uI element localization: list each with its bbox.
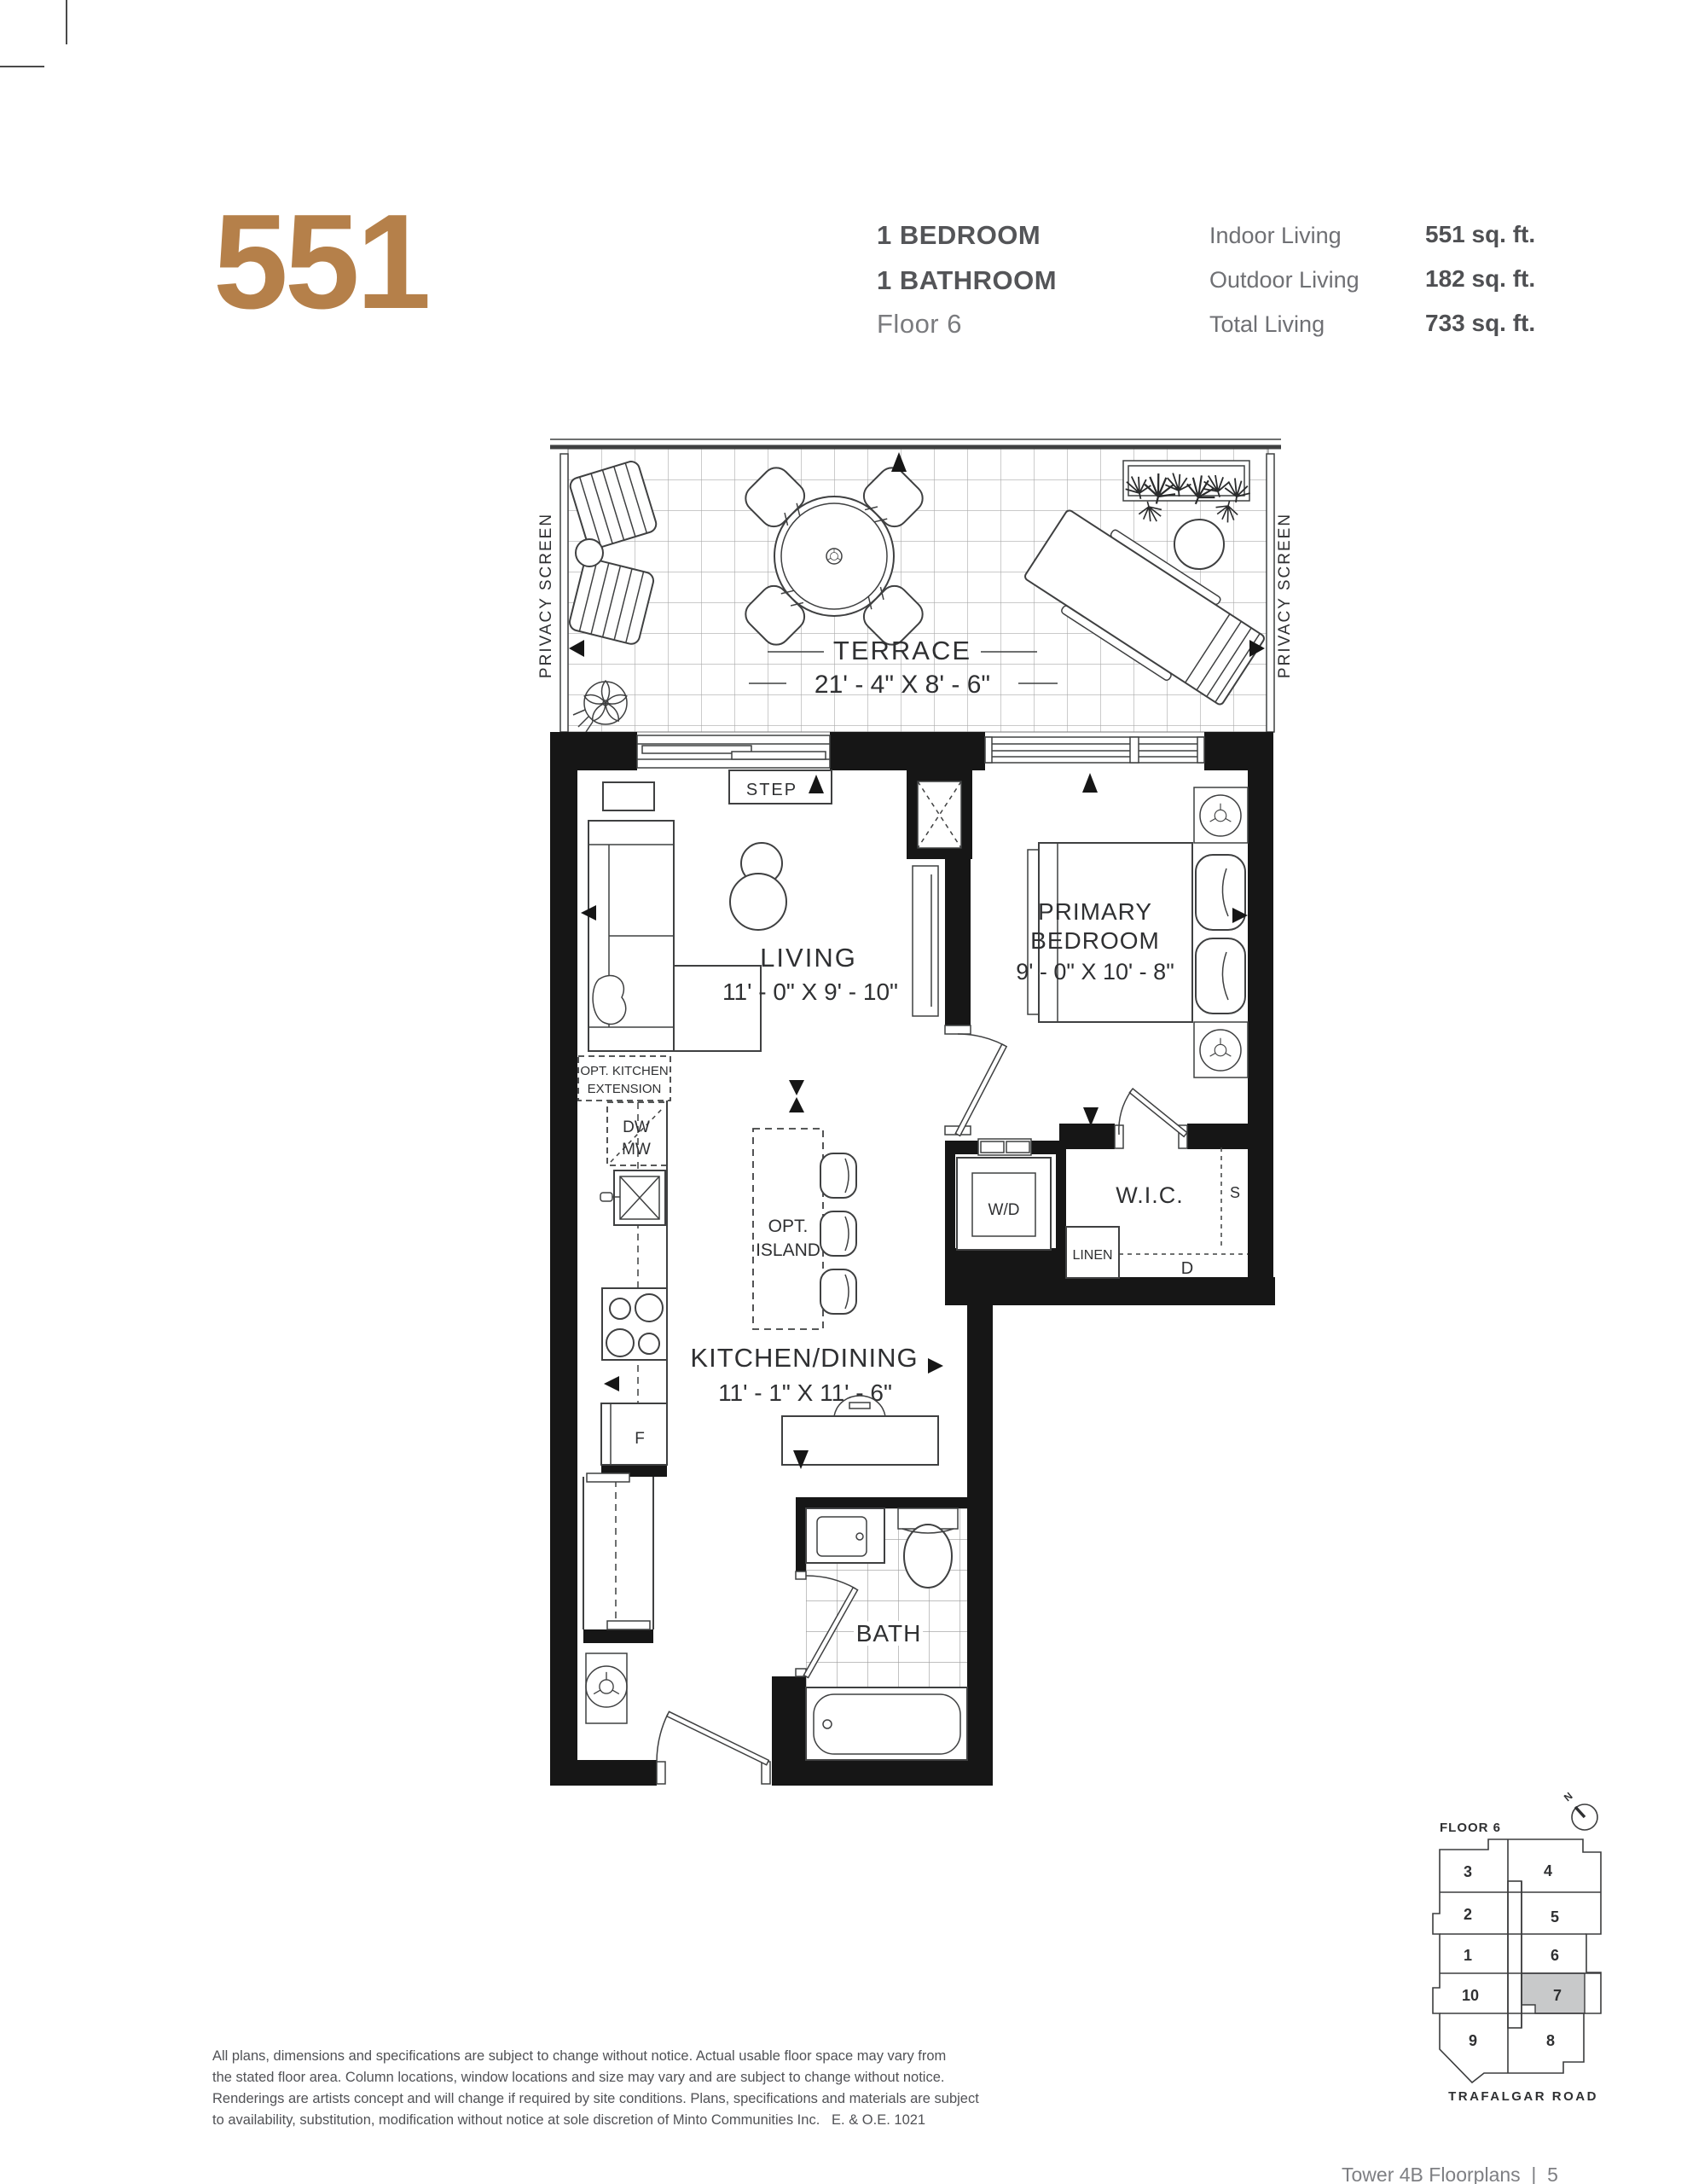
living-label: LIVING <box>760 943 857 973</box>
privacy-screen-left <box>560 454 568 732</box>
wall-right <box>1248 732 1273 1305</box>
opt-island: OPT. ISLAND <box>753 1129 856 1329</box>
shaft <box>907 770 972 859</box>
crop-mark-horizontal <box>0 66 44 67</box>
sofa-throw-blanket <box>593 976 626 1025</box>
nightstand-1 <box>1194 787 1248 843</box>
kitchen-sink <box>600 1170 665 1225</box>
kitchen-left-arrow-icon <box>604 1376 619 1391</box>
stat-value-indoor: 551 sq. ft. <box>1425 221 1535 248</box>
floorplan-drawing: PRIVACY SCREEN PRIVACY SCREEN <box>537 422 1348 1804</box>
stat-label-outdoor: Outdoor Living <box>1209 267 1359 293</box>
keyplan: FLOOR 6 N 3 4 2 5 1 6 10 7 9 8 TRAFALGAR… <box>1380 1779 1636 2120</box>
disclaimer-line: Renderings are artists concept and will … <box>212 2088 979 2110</box>
stat-value-outdoor: 182 sq. ft. <box>1425 265 1535 293</box>
bath-label: BATH <box>856 1620 922 1647</box>
living-window <box>637 735 830 768</box>
terrace-dimension: 21' - 4" X 8' - 6" <box>815 671 990 699</box>
primary-bedroom: PRIMARY BEDROOM 9' - 0" X 10' - 8" <box>1016 787 1248 1077</box>
kitchen-hourglass-arrow-bottom-icon <box>789 1097 804 1112</box>
bed-pillow-2 <box>1196 938 1245 1014</box>
north-label: N <box>1562 1790 1575 1804</box>
wic-down-arrow-icon <box>1083 1107 1099 1126</box>
fridge-label: F <box>635 1430 645 1448</box>
page-footer: Tower 4B Floorplans | 5 <box>1342 2164 1558 2184</box>
bedroom-window-arrow-icon <box>1082 773 1098 793</box>
privacy-screen-right-label: PRIVACY SCREEN <box>1276 513 1294 678</box>
keyplan-unit-8: 8 <box>1546 2032 1555 2049</box>
keyplan-unit-7: 7 <box>1553 1987 1562 2004</box>
dining-right-arrow-icon <box>928 1358 943 1374</box>
floorplan-brochure-page: 551 1 BEDROOM 1 BATHROOM Floor 6 Indoor … <box>0 0 1687 2184</box>
bath-vanity <box>806 1508 884 1563</box>
living-sofa <box>588 821 674 1051</box>
laundry-closet: W/D <box>957 1139 1051 1250</box>
step-label: STEP <box>746 781 797 799</box>
wic-label: W.I.C. <box>1116 1182 1184 1208</box>
bedrooms-label: 1 BEDROOM <box>877 220 1041 251</box>
island-stool <box>820 1211 856 1256</box>
keyplan-unit-10: 10 <box>1462 1987 1479 2004</box>
terrace-round-table <box>1174 520 1224 569</box>
living-console <box>603 782 654 810</box>
keyplan-unit-4: 4 <box>1544 1862 1552 1879</box>
living-round-table-large <box>730 874 786 930</box>
wall-bath-right <box>967 1305 993 1786</box>
wall-tv <box>945 859 971 1034</box>
terrace-side-table <box>576 539 603 566</box>
wic-dresser-label: D <box>1181 1259 1193 1278</box>
cooktop <box>602 1288 667 1360</box>
keyplan-core <box>1508 1881 1522 2028</box>
bedroom-label-line2: BEDROOM <box>1030 927 1160 954</box>
living-room: LIVING 11' - 0" X 9' - 10" <box>588 782 938 1051</box>
fan-coil-unit <box>586 1653 627 1723</box>
kitchen-hourglass-arrow-top-icon <box>789 1080 804 1095</box>
wall-wic-bottom <box>1066 1277 1275 1305</box>
floor-label: Floor 6 <box>877 309 962 340</box>
bedroom-dimension: 9' - 0" X 10' - 8" <box>1016 959 1174 985</box>
opt-kitchen-extension-label2: EXTENSION <box>588 1082 662 1096</box>
opt-kitchen-extension: OPT. KITCHEN EXTENSION <box>578 1056 670 1101</box>
bedroom-door-swing <box>958 1034 1004 1045</box>
opt-island-label2: ISLAND <box>756 1240 820 1260</box>
bathtub <box>806 1687 967 1760</box>
keyplan-unit-9: 9 <box>1469 2032 1477 2049</box>
island-stool <box>820 1269 856 1314</box>
disclaimer-line: All plans, dimensions and specifications… <box>212 2046 979 2067</box>
linen-closet: LINEN <box>1066 1227 1119 1278</box>
disclaimer-line: to availability, substitution, modificat… <box>212 2110 979 2131</box>
wic-shelf-label: S <box>1230 1184 1240 1201</box>
bedroom-window <box>985 737 1204 763</box>
privacy-screen-right <box>1267 454 1274 732</box>
street-label: TRAFALGAR ROAD <box>1448 2089 1598 2104</box>
microwave-label: MW <box>622 1141 651 1159</box>
keyplan-title: FLOOR 6 <box>1440 1821 1501 1835</box>
nightstand-2 <box>1194 1022 1248 1077</box>
bathrooms-label: 1 BATHROOM <box>877 265 1057 296</box>
wall-left <box>550 732 577 1786</box>
dishwasher-microwave: DW MW <box>607 1102 667 1165</box>
keyplan-unit-3: 3 <box>1464 1863 1472 1880</box>
keyplan-unit-5: 5 <box>1551 1908 1559 1926</box>
keyplan-unit-6: 6 <box>1551 1947 1559 1964</box>
linen-label: LINEN <box>1072 1248 1112 1263</box>
terrace-area: PRIVACY SCREEN PRIVACY SCREEN <box>537 439 1294 732</box>
page-title-unit-number: 551 <box>213 195 428 329</box>
living-dimension: 11' - 0" X 9' - 10" <box>722 979 898 1005</box>
disclaimer: All plans, dimensions and specifications… <box>212 2046 979 2131</box>
crop-mark-vertical <box>66 0 67 44</box>
privacy-screen-left-label: PRIVACY SCREEN <box>537 513 555 678</box>
walk-in-closet: W.I.C. S D <box>1116 1147 1248 1278</box>
keyplan-unit-1: 1 <box>1464 1947 1472 1964</box>
terrace-label: TERRACE <box>833 636 971 665</box>
keyplan-unit-2: 2 <box>1464 1906 1472 1923</box>
wall-bath-top <box>796 1497 993 1508</box>
island-stool <box>820 1153 856 1198</box>
disclaimer-line: the stated floor area. Column locations,… <box>212 2067 979 2088</box>
washer-dryer-label: W/D <box>988 1201 1020 1219</box>
opt-kitchen-extension-label1: OPT. KITCHEN <box>580 1064 668 1078</box>
bedroom-label-line1: PRIMARY <box>1038 898 1152 925</box>
stat-value-total: 733 sq. ft. <box>1425 310 1535 337</box>
keyplan-building-outline <box>1433 1839 1601 2082</box>
stat-label-total: Total Living <box>1209 311 1325 338</box>
fridge: F <box>601 1403 667 1465</box>
stat-label-indoor: Indoor Living <box>1209 223 1342 249</box>
dishwasher-label: DW <box>623 1118 650 1136</box>
entry-closet <box>583 1473 653 1629</box>
living-tv <box>913 866 938 1016</box>
entry-door-swing <box>657 1714 668 1763</box>
step: STEP <box>729 770 832 804</box>
north-compass-icon: N <box>1562 1790 1597 1830</box>
opt-island-label1: OPT. <box>768 1217 809 1236</box>
kitchen-dining-label: KITCHEN/DINING <box>690 1343 918 1373</box>
